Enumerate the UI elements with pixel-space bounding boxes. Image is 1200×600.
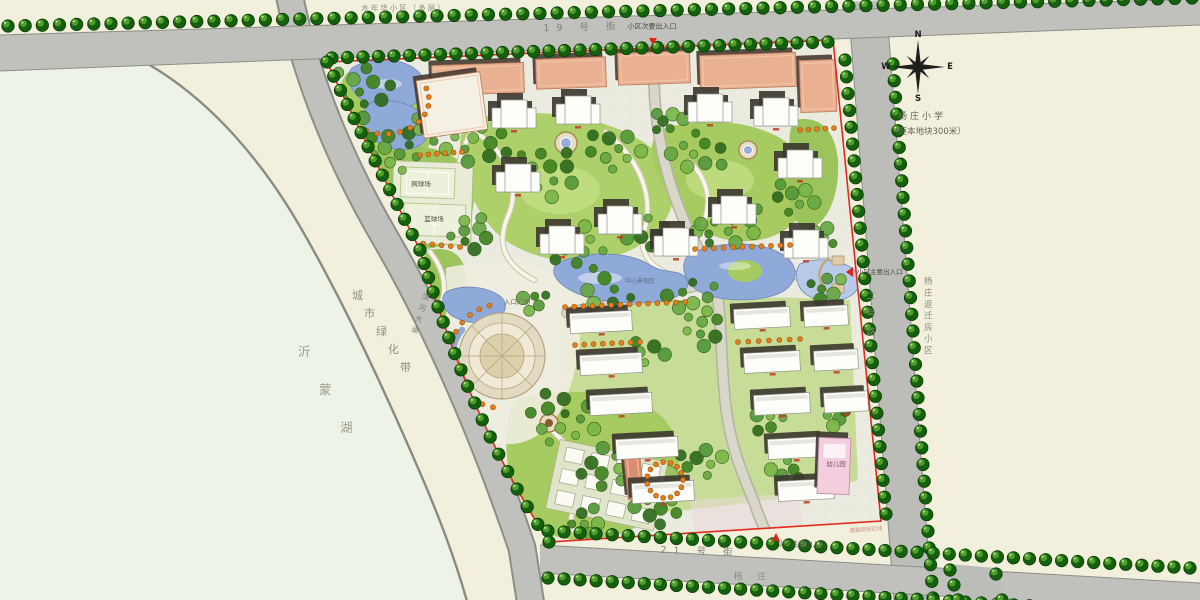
- residential-master-plan: 水年华小区（多层） 19 号 街 小区次要出入口 杨庄小学 （距本地块300米）…: [0, 0, 1200, 600]
- compass-n-label: N: [914, 30, 921, 40]
- compass-s-label: S: [915, 94, 921, 104]
- compass-w-label: W: [881, 62, 890, 72]
- site-plan-canvas: [0, 0, 1200, 600]
- compass-e-label: E: [947, 62, 953, 72]
